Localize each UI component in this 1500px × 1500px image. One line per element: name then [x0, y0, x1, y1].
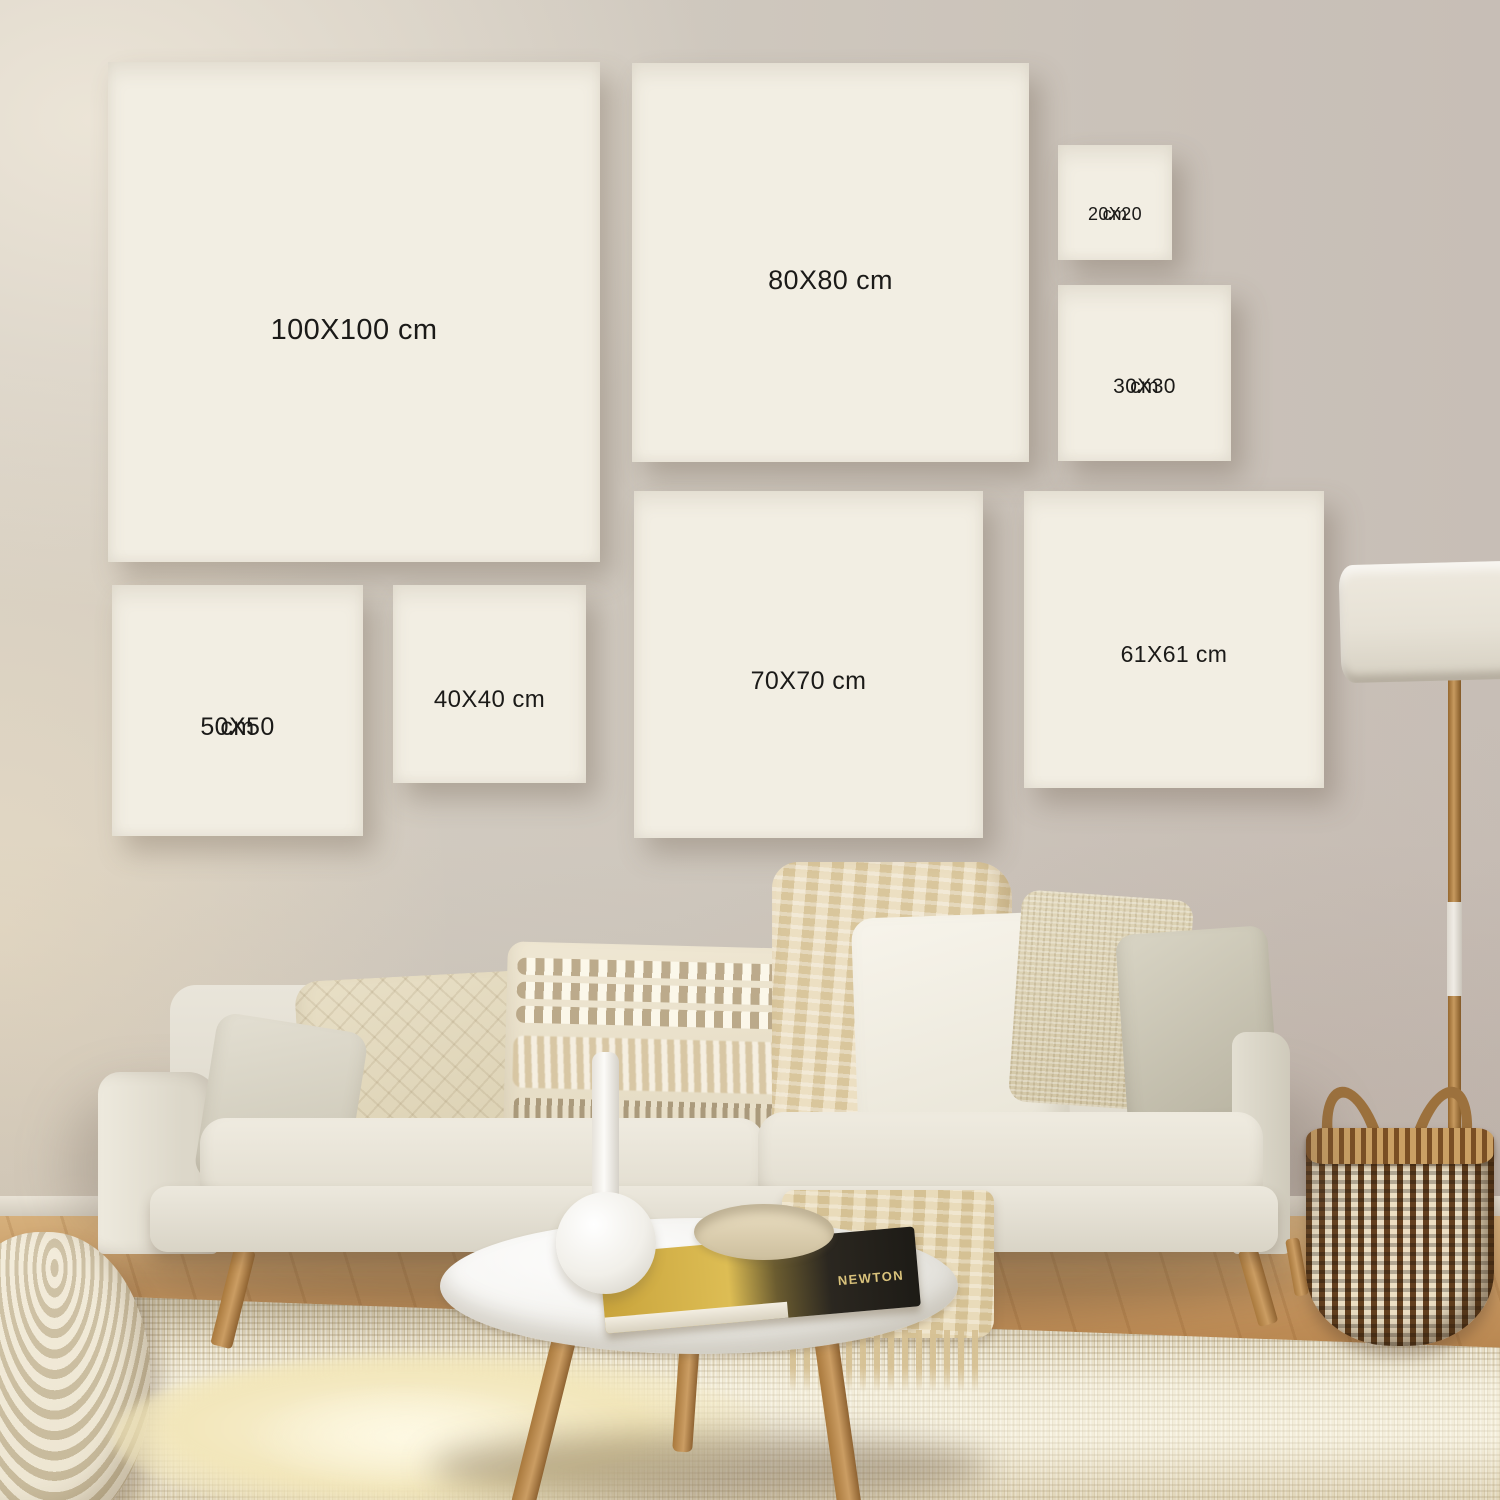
frame-size-line2: cm — [1130, 373, 1159, 400]
frame-size-line1: 40X40 cm — [434, 684, 545, 715]
frame-size-line1: 80X80 cm — [768, 263, 893, 298]
frame-100x100: 100X100 cm — [108, 62, 600, 562]
pillow-braid-row — [517, 982, 781, 1006]
frame-30x30-matte: 30X30 cm — [1058, 285, 1231, 461]
frame-50x50: 50X50 cm — [112, 585, 363, 836]
frame-70x70: 70X70 cm — [634, 491, 983, 838]
pillow-shag-band — [512, 1035, 781, 1094]
floor-lamp-pole-band — [1447, 902, 1462, 996]
frame-100x100-matte: 100X100 cm — [108, 62, 600, 562]
living-room-frame-size-mockup: 100X100 cm 80X80 cm 20X20 cm 30X30 cm — [0, 0, 1500, 1500]
frame-50x50-matte: 50X50 cm — [112, 585, 363, 836]
frame-61x61: 61X61 cm — [1024, 491, 1324, 788]
woven-basket-rim — [1306, 1128, 1494, 1164]
vase-body — [556, 1192, 656, 1294]
pillow-braid-row — [517, 958, 781, 982]
frame-20x20-matte: 20X20 cm — [1058, 145, 1172, 260]
frame-70x70-matte: 70X70 cm — [634, 491, 983, 838]
frame-size-line2: cm — [1103, 203, 1128, 226]
frame-61x61-matte: 61X61 cm — [1024, 491, 1324, 788]
ceramic-bowl — [694, 1204, 834, 1260]
book-spine-title: NEWTON — [837, 1267, 905, 1288]
frame-size-line1: 100X100 cm — [271, 312, 438, 350]
frame-size-line2: cm — [220, 711, 254, 744]
frame-size-line1: 70X70 cm — [751, 665, 867, 698]
frame-size-line1: 61X61 cm — [1121, 640, 1228, 670]
frame-30x30: 30X30 cm — [1058, 285, 1231, 461]
frame-40x40-matte: 40X40 cm — [393, 585, 586, 783]
frame-80x80-matte: 80X80 cm — [632, 63, 1029, 462]
frame-20x20: 20X20 cm — [1058, 145, 1172, 260]
frame-80x80: 80X80 cm — [632, 63, 1029, 462]
floor-lamp-shade — [1338, 561, 1500, 684]
frame-40x40: 40X40 cm — [393, 585, 586, 783]
pillow-braid-row — [516, 1006, 780, 1030]
